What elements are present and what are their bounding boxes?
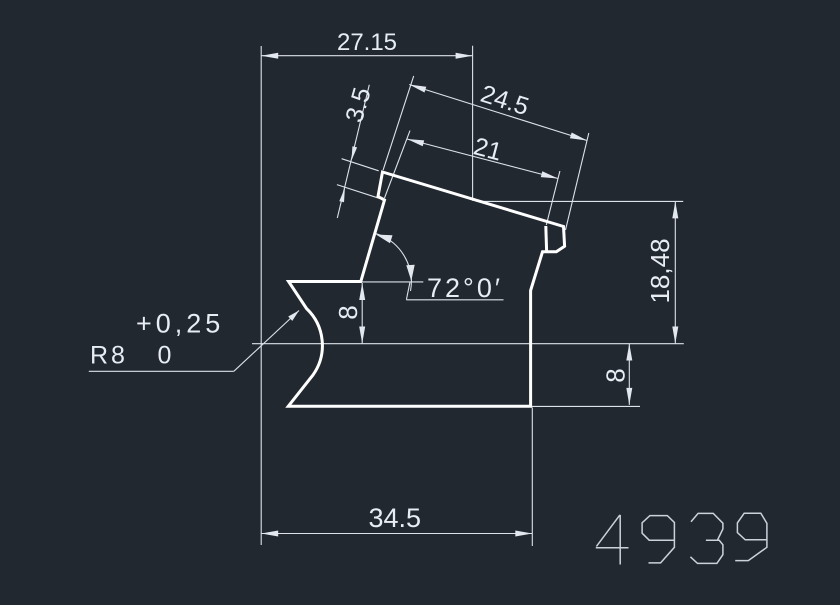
svg-text:0: 0 (158, 342, 172, 370)
svg-text:27.15: 27.15 (337, 29, 397, 56)
svg-text:18,48: 18,48 (645, 238, 675, 303)
svg-text:8: 8 (601, 368, 631, 382)
svg-text:R8: R8 (90, 342, 128, 370)
svg-text:34.5: 34.5 (369, 503, 422, 533)
svg-text:72°0′: 72°0′ (427, 273, 503, 303)
svg-text:8: 8 (333, 305, 363, 319)
svg-text:+0,25: +0,25 (136, 309, 224, 339)
